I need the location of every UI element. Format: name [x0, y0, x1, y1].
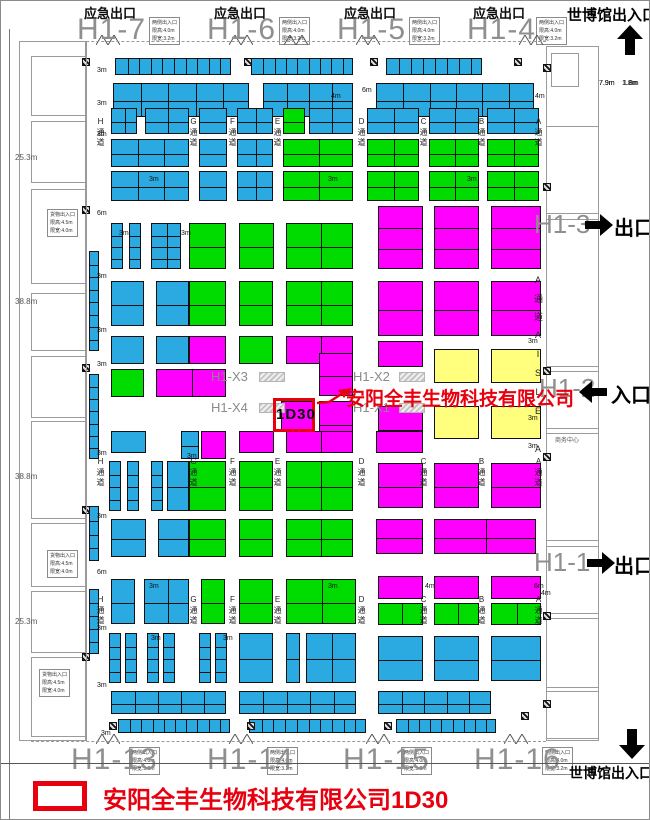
- pillar-mark: [247, 722, 255, 730]
- gate-info-line: 货物出入口: [50, 211, 75, 219]
- grid-label-h1-x2: H1-X2: [353, 370, 390, 383]
- grid-label-hatch: [259, 372, 285, 382]
- expo-gate-bottom-label: 世博馆出入口: [569, 763, 650, 783]
- pillar-mark: [543, 700, 551, 708]
- dim-label: 3m: [151, 635, 161, 642]
- dim-label: 4m: [331, 93, 341, 100]
- pillar-mark: [521, 712, 529, 720]
- dim-label: 3m: [97, 327, 107, 334]
- hall-label-h1-15: H1-15: [343, 745, 430, 775]
- exit-label: 出口: [614, 550, 650, 579]
- entrance-arrow-left-icon: [579, 381, 607, 403]
- aisle-letter-label: E通道: [273, 117, 282, 157]
- aisle-a-vertical-label: A通道AISLE A: [532, 275, 545, 565]
- aisle-letter-label: F通道: [228, 595, 237, 635]
- gate-info-line: 货物出入口: [42, 671, 67, 679]
- measurement-label: 38.8m: [15, 472, 37, 481]
- hall-label-h1-1: H1-1: [534, 549, 590, 575]
- highlighted-booth-id: 1D30: [276, 406, 316, 423]
- exhibition-floor-plan: 3m4m6m4m3m3m3m3m3m6m3m3m3m3m3m3m3m3m3m3m…: [0, 0, 650, 820]
- dim-label: 3m: [119, 230, 129, 237]
- gate-info-box: 货物出入口限高:4.5m限宽:4.0m: [47, 550, 78, 578]
- up-arrow-icon: [617, 25, 643, 55]
- gate-info-line: 货物出入口: [50, 552, 75, 560]
- aisle-letter-label: B通道: [477, 117, 486, 157]
- dim-label: 3m: [149, 176, 159, 183]
- hall-label-h1-14: H1-14: [207, 745, 294, 775]
- gate-info-line: 限高:4.5m: [50, 219, 75, 227]
- hall-label-h1-3: H1-3: [534, 211, 590, 237]
- gate-info-box: 货物出入口限高:4.5m限宽:4.0m: [47, 209, 78, 237]
- pillar-mark: [543, 612, 551, 620]
- aisle-letter-label: H通道: [96, 595, 105, 635]
- gate-info-line: 限高:4.0m: [282, 27, 307, 35]
- dim-label: 3m: [97, 361, 107, 368]
- aisle-letter-label: E通道: [273, 595, 282, 635]
- expo-gate-top-label: 世博馆出入口: [567, 4, 650, 25]
- pillar-mark: [370, 58, 378, 66]
- aisle-letter-label: C通道: [419, 595, 428, 635]
- dim-label: 6m: [97, 210, 107, 217]
- aisle-letter-label: D通道: [357, 117, 366, 157]
- hall-label-h1-4: H1-4: [467, 15, 536, 45]
- dim-label: 3m: [467, 176, 477, 183]
- left-hall-wall: [86, 41, 87, 741]
- legend-company-text: 安阳全丰生物科技有限公司1D30: [103, 780, 448, 815]
- pillar-mark: [514, 58, 522, 66]
- dim-label: 7.9m: [599, 80, 615, 87]
- pillar-mark: [109, 722, 117, 730]
- dim-label: 1.8m: [623, 80, 639, 87]
- aisle-letter-label: B通道: [477, 457, 486, 497]
- dim-label: 3m: [97, 682, 107, 689]
- gate-info-line: 两侧出入口: [152, 19, 177, 27]
- measurement-label: 25.3m: [15, 617, 37, 626]
- gate-info-line: 限高:4.5m: [50, 560, 75, 568]
- gate-info-line: 两侧出入口: [539, 19, 564, 27]
- aisle-letter-label: D通道: [357, 457, 366, 497]
- aisle-letter-label: B通道: [477, 595, 486, 635]
- dim-label: 6m: [362, 87, 372, 94]
- gate-info-line: 限高:4.5m: [42, 679, 67, 687]
- aisle-letter-label: C通道: [419, 457, 428, 497]
- gate-info-line: 限宽:4.0m: [42, 687, 67, 695]
- dim-label: 3m: [97, 67, 107, 74]
- gate-info-line: 限宽:4.0m: [50, 227, 75, 235]
- gate-info-line: 两侧出入口: [282, 19, 307, 27]
- company-name-callout: 安阳全丰生物科技有限公司: [346, 384, 574, 411]
- hall-label-h1-5: H1-5: [337, 15, 406, 45]
- aisle-letter-label: A通道: [534, 117, 543, 157]
- legend-red-rect: [33, 781, 87, 811]
- legend-divider: [1, 763, 649, 764]
- measurement-label: 38.8m: [15, 297, 37, 306]
- aisle-letter-label: F通道: [228, 117, 237, 157]
- gate-info-line: 两侧出入口: [412, 19, 437, 27]
- measurement-label: 25.3m: [15, 153, 37, 162]
- aisle-letter-label: G通道: [189, 457, 198, 497]
- gate-info-line: 限高:4.0m: [412, 27, 437, 35]
- gate-info-line: 限宽:4.0m: [50, 568, 75, 576]
- dim-label: 3m: [223, 635, 233, 642]
- gate-info-line: 限高:4.0m: [152, 27, 177, 35]
- business-center-label: 商务中心: [555, 435, 579, 444]
- gate-info-box: 货物出入口限高:4.5m限宽:4.0m: [39, 669, 70, 697]
- grid-label-h1-x3: H1-X3: [211, 370, 248, 383]
- hall-label-h1-6: H1-6: [207, 15, 276, 45]
- aisle-letter-label: G通道: [189, 595, 198, 635]
- dim-label: 3m: [97, 450, 107, 457]
- down-arrow-icon: [619, 729, 645, 759]
- grid-label-h1-x4: H1-X4: [211, 401, 248, 414]
- gate-info-line: 限高:4.0m: [539, 27, 564, 35]
- door-icon: [284, 35, 308, 45]
- aisle-letter-label: H通道: [96, 457, 105, 497]
- aisle-letter-label: G通道: [189, 117, 198, 157]
- dim-label: 3m: [328, 583, 338, 590]
- aisle-letter-label: C通道: [419, 117, 428, 157]
- exit-arrow-right-icon: [587, 552, 615, 574]
- dim-label: 3m: [328, 176, 338, 183]
- dim-label: 3m: [181, 230, 191, 237]
- dim-label: 6m: [97, 569, 107, 576]
- dim-label: 3m: [97, 100, 107, 107]
- outer-left-frame: [9, 29, 10, 819]
- hall-label-h1-13: H1-13: [71, 745, 158, 775]
- aisle-letter-label: D通道: [357, 595, 366, 635]
- pillar-mark: [244, 58, 252, 66]
- pillar-mark: [543, 183, 551, 191]
- dim-label: 4m: [535, 93, 545, 100]
- dim-label: 3m: [97, 273, 107, 280]
- exit-arrow-right-icon: [585, 214, 613, 236]
- aisle-letter-label: F通道: [228, 457, 237, 497]
- hall-label-h1-7: H1-7: [77, 15, 146, 45]
- aisle-letter-label: A通道: [534, 595, 543, 635]
- dim-label: 3m: [149, 583, 159, 590]
- dim-label: 6m: [534, 583, 544, 590]
- dim-label: 4m: [425, 583, 435, 590]
- entrance-label: 入口: [611, 379, 650, 408]
- pillar-mark: [543, 64, 551, 72]
- aisle-letter-label: H通道: [96, 117, 105, 157]
- aisle-letter-label: E通道: [273, 457, 282, 497]
- hall-label-h1-16: H1-16: [474, 745, 561, 775]
- dim-label: 3m: [97, 513, 107, 520]
- exit-label: 出口: [614, 212, 650, 241]
- bottom-wall: [31, 741, 546, 742]
- grid-label-hatch: [399, 372, 425, 382]
- pillar-mark: [384, 722, 392, 730]
